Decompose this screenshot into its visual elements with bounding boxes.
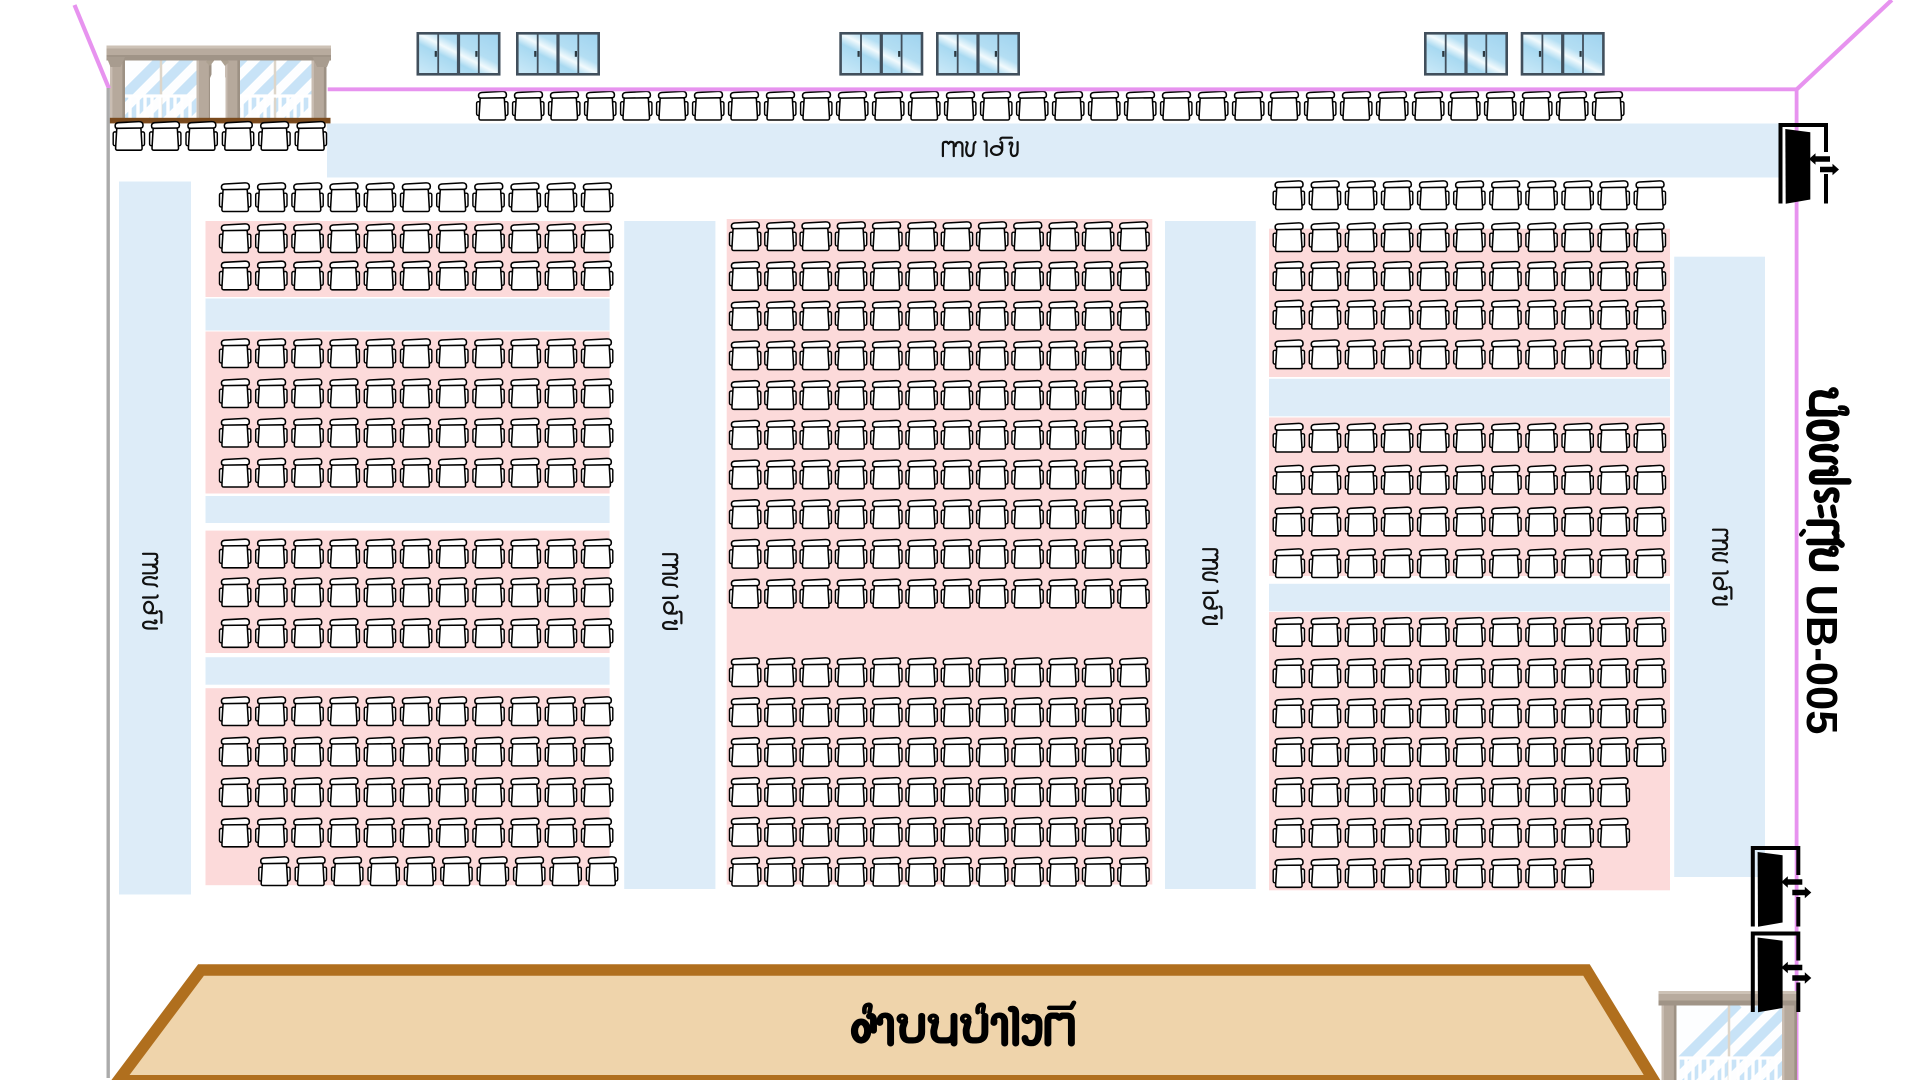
svg-text:UB-005: UB-005 xyxy=(1797,585,1845,735)
